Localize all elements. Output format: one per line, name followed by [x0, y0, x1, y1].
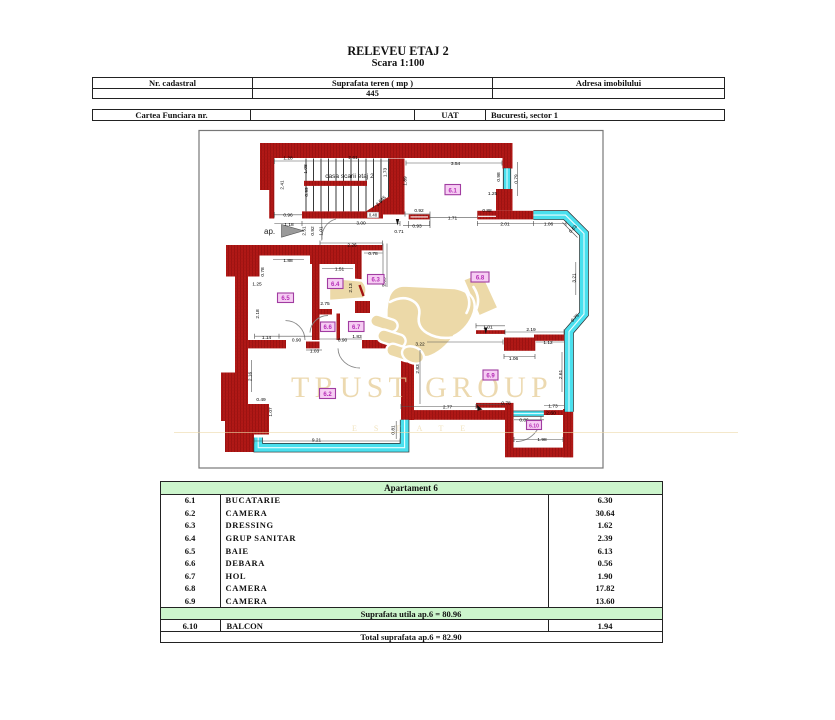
svg-text:6.7: 6.7: [352, 325, 361, 331]
svg-text:6.1: 6.1: [449, 189, 458, 195]
svg-text:6.4: 6.4: [331, 282, 340, 288]
svg-text:0.98: 0.98: [496, 172, 502, 182]
svg-text:1.89: 1.89: [403, 176, 409, 186]
svg-text:2.61: 2.61: [558, 370, 564, 380]
svg-text:ESTATE: ESTATE: [352, 424, 482, 433]
svg-text:1.06: 1.06: [544, 221, 554, 227]
svg-text:1.12: 1.12: [543, 340, 553, 346]
svg-text:2.60: 2.60: [546, 411, 556, 417]
svg-text:1.06: 1.06: [509, 356, 519, 362]
svg-text:6.10: 6.10: [529, 423, 539, 429]
svg-text:2.26: 2.26: [347, 243, 357, 249]
svg-text:0.48: 0.48: [369, 213, 378, 218]
svg-text:6.6: 6.6: [324, 325, 333, 331]
svg-text:2.41: 2.41: [280, 180, 286, 190]
svg-text:1.18: 1.18: [284, 222, 294, 228]
svg-text:3.22: 3.22: [415, 342, 425, 348]
svg-text:2.19: 2.19: [526, 327, 536, 333]
svg-text:1.51: 1.51: [335, 267, 345, 273]
svg-text:1.73: 1.73: [383, 168, 389, 178]
svg-text:2.13: 2.13: [348, 283, 354, 293]
svg-text:9.21: 9.21: [312, 438, 322, 444]
svg-text:1.98: 1.98: [537, 437, 547, 443]
svg-text:2.01: 2.01: [500, 222, 510, 228]
svg-text:0.96: 0.96: [283, 213, 293, 219]
svg-text:0.49: 0.49: [256, 397, 266, 403]
svg-text:0.90: 0.90: [338, 337, 348, 343]
svg-text:6.8: 6.8: [476, 276, 485, 282]
svg-text:0.71: 0.71: [394, 229, 404, 235]
svg-text:1.71: 1.71: [448, 215, 458, 221]
svg-text:0.79: 0.79: [514, 174, 520, 184]
svg-text:2.83: 2.83: [415, 364, 421, 374]
svg-text:2.16: 2.16: [248, 372, 254, 382]
svg-text:0.78: 0.78: [260, 267, 266, 277]
svg-text:1.03: 1.03: [310, 349, 320, 355]
svg-text:2.51: 2.51: [302, 226, 308, 236]
svg-text:3.00: 3.00: [356, 221, 366, 227]
svg-text:0.88: 0.88: [482, 208, 492, 214]
svg-text:1.83: 1.83: [352, 334, 362, 340]
svg-text:0.78: 0.78: [501, 401, 511, 407]
svg-text:6.5: 6.5: [281, 296, 290, 302]
svg-text:2.18: 2.18: [255, 309, 261, 319]
svg-text:6.9: 6.9: [486, 374, 495, 380]
svg-text:0.90: 0.90: [292, 337, 302, 343]
svg-text:0.93: 0.93: [412, 224, 422, 230]
svg-text:1.28: 1.28: [283, 156, 293, 162]
svg-text:1.25: 1.25: [488, 191, 498, 197]
svg-text:3.21: 3.21: [572, 273, 578, 283]
svg-text:casa scarii etaj 2: casa scarii etaj 2: [325, 173, 374, 180]
svg-text:1.01: 1.01: [319, 226, 325, 236]
svg-text:0.99: 0.99: [304, 187, 310, 197]
svg-text:0.81: 0.81: [391, 425, 397, 435]
svg-text:6.2: 6.2: [323, 392, 332, 398]
svg-text:1.14: 1.14: [262, 335, 272, 341]
svg-text:0.78: 0.78: [368, 251, 378, 257]
svg-text:1.07: 1.07: [268, 407, 274, 417]
svg-text:1.88: 1.88: [283, 258, 293, 264]
svg-text:2.61: 2.61: [348, 155, 358, 161]
svg-text:1.08: 1.08: [303, 164, 309, 174]
svg-text:0.92: 0.92: [310, 226, 316, 236]
svg-text:0.92: 0.92: [414, 208, 424, 214]
svg-text:ap.: ap.: [264, 227, 275, 236]
svg-text:6.3: 6.3: [372, 278, 381, 284]
svg-text:1.01: 1.01: [483, 325, 493, 331]
svg-text:1.25: 1.25: [252, 282, 262, 288]
svg-text:2.75: 2.75: [320, 301, 330, 307]
svg-text:2.77: 2.77: [443, 405, 453, 411]
svg-text:3.54: 3.54: [451, 161, 461, 167]
svg-text:1.73: 1.73: [548, 404, 558, 410]
